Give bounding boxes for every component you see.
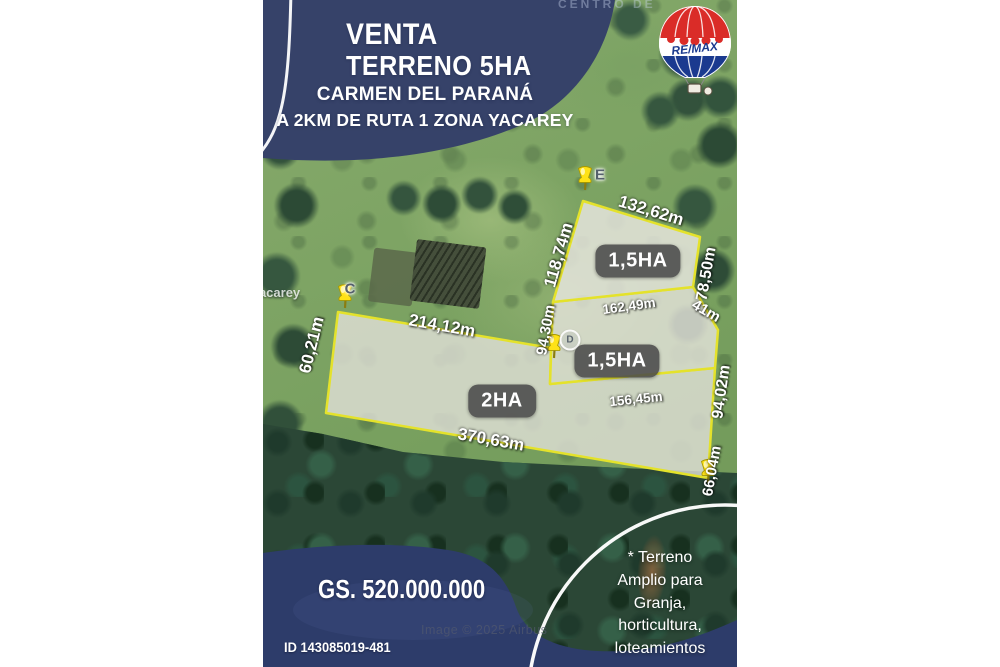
map-place-label-faint: CENTRO DE <box>558 0 656 11</box>
features-line-1: * Terreno <box>580 547 737 570</box>
title-line-1: VENTA <box>346 19 532 51</box>
area-badge-mid: 1,5HA <box>574 345 659 378</box>
flyer-title: VENTA TERRENO 5HA <box>346 19 532 80</box>
title-line-2: TERRENO 5HA <box>346 51 532 80</box>
listing-id: ID 143085019-481 <box>284 639 391 655</box>
imagery-credit: Image © 2025 Airbus <box>421 623 547 637</box>
area-badge-top: 1,5HA <box>595 245 680 278</box>
map-place-label-yacarey: Yacarey <box>263 285 300 300</box>
area-badge-2ha: 2HA <box>468 385 536 418</box>
marker-letter-d: D <box>566 335 573 346</box>
marker-label-c: C <box>345 281 356 298</box>
flyer-canvas: RE/MAX VENTA TERRENO 5HA <box>0 0 1000 667</box>
location-line-1: CARMEN DEL PARANÁ <box>263 84 587 106</box>
features-line-4: horticultura, <box>580 615 737 638</box>
flyer-location: CARMEN DEL PARANÁ A 2KM DE RUTA 1 ZONA Y… <box>263 84 587 131</box>
features-note: * Terreno Amplio para Granja, horticultu… <box>580 547 737 661</box>
balloon-basket <box>688 84 701 93</box>
registered-mark-icon <box>704 87 712 95</box>
price: GS. 520.000.000 <box>318 574 485 605</box>
features-line-5: loteamientos <box>580 638 737 661</box>
real-estate-flyer: RE/MAX VENTA TERRENO 5HA <box>263 0 737 667</box>
pushpin-icon-e <box>579 167 592 191</box>
remax-balloon-logo: RE/MAX <box>655 4 735 95</box>
marker-label-e: E <box>595 167 605 184</box>
features-line-2: Amplio para <box>580 570 737 593</box>
location-line-2: A 2KM DE RUTA 1 ZONA YACAREY <box>263 110 587 131</box>
features-line-3: Granja, <box>580 593 737 616</box>
